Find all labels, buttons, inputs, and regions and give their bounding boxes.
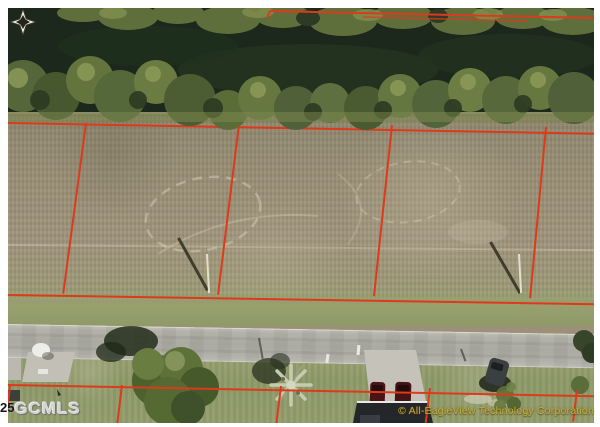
left-edge-structures xyxy=(8,343,75,401)
mailbox-post xyxy=(357,345,361,355)
light-scuff xyxy=(448,220,508,244)
watermark-mls: 25GCMLS xyxy=(0,399,81,419)
palm-plant xyxy=(252,353,311,405)
listing-photo-frame: 25GCMLS © All-EagleView Technology Corpo… xyxy=(0,0,600,427)
watermark-copyright: © All-EagleView Technology Corporation xyxy=(398,405,594,417)
mls-name: GCMLS xyxy=(14,399,80,418)
large-tree-left xyxy=(96,326,219,423)
compass-rose-icon xyxy=(10,9,36,35)
aerial-photo xyxy=(8,8,594,423)
mls-year-partial: 25 xyxy=(0,400,14,415)
tree-right-edge xyxy=(571,330,594,394)
bank-grass-fringe xyxy=(8,112,594,122)
track-ellipses xyxy=(139,155,464,261)
canal-and-trees xyxy=(8,8,594,134)
small-dark-object xyxy=(57,389,61,396)
mailbox-post xyxy=(325,354,329,363)
